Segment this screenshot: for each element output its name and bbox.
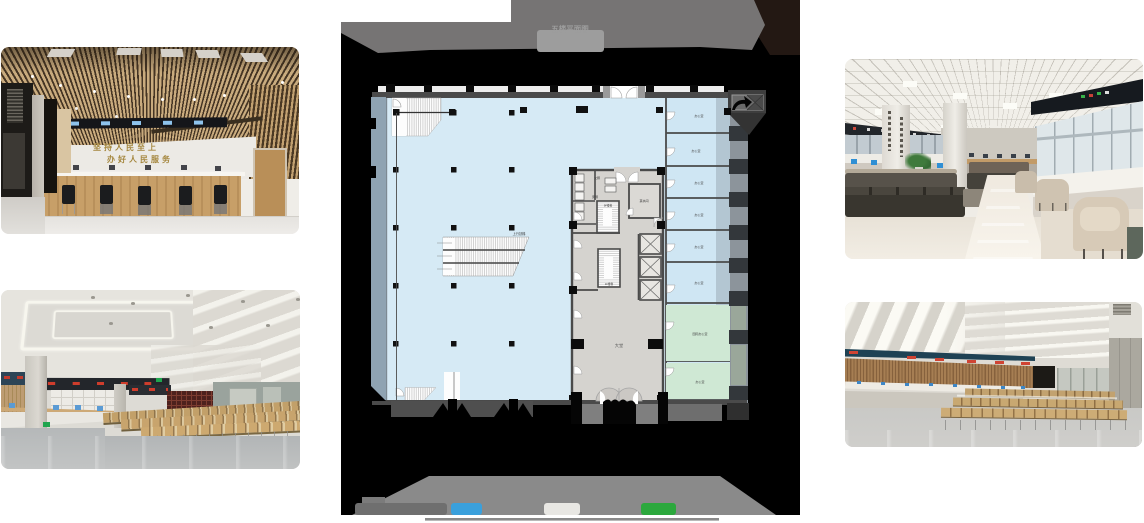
svg-text:办公室: 办公室 (694, 113, 703, 118)
svg-text:办公室: 办公室 (694, 212, 703, 217)
svg-text:办公室: 办公室 (694, 244, 703, 249)
svg-text:茶水间: 茶水间 (639, 198, 648, 203)
svg-text:五楼平面图: 五楼平面图 (551, 24, 589, 34)
svg-text:1F楼梯: 1F楼梯 (605, 282, 614, 286)
svg-text:办公室: 办公室 (694, 280, 703, 285)
svg-text:办公室: 办公室 (691, 148, 700, 153)
svg-text:国际办公室: 国际办公室 (692, 331, 707, 336)
svg-text:办公室: 办公室 (694, 180, 703, 185)
svg-text:大堂: 大堂 (615, 342, 623, 349)
svg-text:办公室: 办公室 (695, 379, 704, 384)
svg-text:9F楼梯: 9F楼梯 (604, 204, 613, 208)
svg-text:上行扶梯: 上行扶梯 (513, 231, 527, 236)
